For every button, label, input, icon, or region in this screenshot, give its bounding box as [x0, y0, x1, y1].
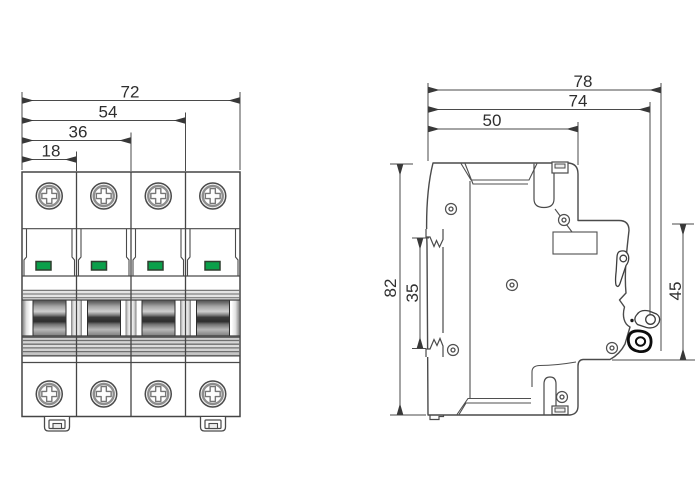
side-view: 78 74 50 82 35 45 — [381, 72, 695, 420]
toggle-handle — [142, 300, 175, 336]
toggle-handle — [88, 300, 121, 336]
din-rail-clip — [45, 417, 70, 431]
status-indicator-window — [92, 262, 107, 271]
rivet-icon — [446, 204, 457, 215]
dim-label-three-modules: 54 — [99, 103, 118, 122]
screw-terminal-icon — [200, 381, 226, 407]
bottom-terminal-tab — [552, 406, 568, 415]
dim-label-handle-face-depth: 74 — [569, 92, 588, 111]
front-view: 72 54 36 18 — [22, 83, 240, 432]
front-dimensions: 72 54 36 18 — [22, 83, 240, 172]
label-plate — [553, 232, 597, 254]
dim-label-total-width: 72 — [121, 83, 140, 102]
dim-label-din-slot-height: 35 — [403, 284, 422, 303]
dim-label-one-module: 18 — [42, 142, 61, 161]
din-rail-clip — [201, 417, 226, 431]
screw-terminal-icon — [200, 183, 226, 209]
toggle-handle — [33, 300, 66, 336]
dim-label-base-depth: 50 — [483, 111, 502, 130]
toggle-grip-hole — [636, 337, 645, 345]
screw-terminal-icon — [36, 381, 62, 407]
rivet-icon — [507, 280, 518, 291]
toggle-handle — [197, 300, 230, 336]
status-indicator-window — [205, 262, 220, 271]
rivet-icon — [557, 392, 568, 403]
dim-label-total-height: 82 — [381, 279, 400, 298]
dim-label-two-modules: 36 — [69, 123, 88, 142]
dim-label-total-depth: 78 — [574, 72, 593, 91]
rivet-icon — [607, 343, 618, 354]
lever-pivot-hole — [646, 315, 656, 325]
screw-terminal-icon — [145, 381, 171, 407]
rivet-icon — [559, 215, 570, 226]
dim-label-front-section-height: 45 — [666, 282, 685, 301]
status-indicator-window — [148, 262, 163, 271]
rivet-icon — [448, 345, 459, 356]
pivot-dot — [630, 319, 633, 322]
screw-terminal-icon — [145, 183, 171, 209]
screw-terminal-icon — [91, 381, 117, 407]
screw-terminal-icon — [36, 183, 62, 209]
status-indicator-window — [36, 262, 51, 271]
breaker-side-body — [427, 163, 630, 415]
mcb-dimension-drawing: 72 54 36 18 — [0, 0, 700, 500]
top-terminal-tab — [552, 162, 568, 173]
screw-terminal-icon — [91, 183, 117, 209]
technical-drawing-page: 72 54 36 18 — [0, 0, 700, 500]
pawl-hole — [620, 255, 627, 262]
